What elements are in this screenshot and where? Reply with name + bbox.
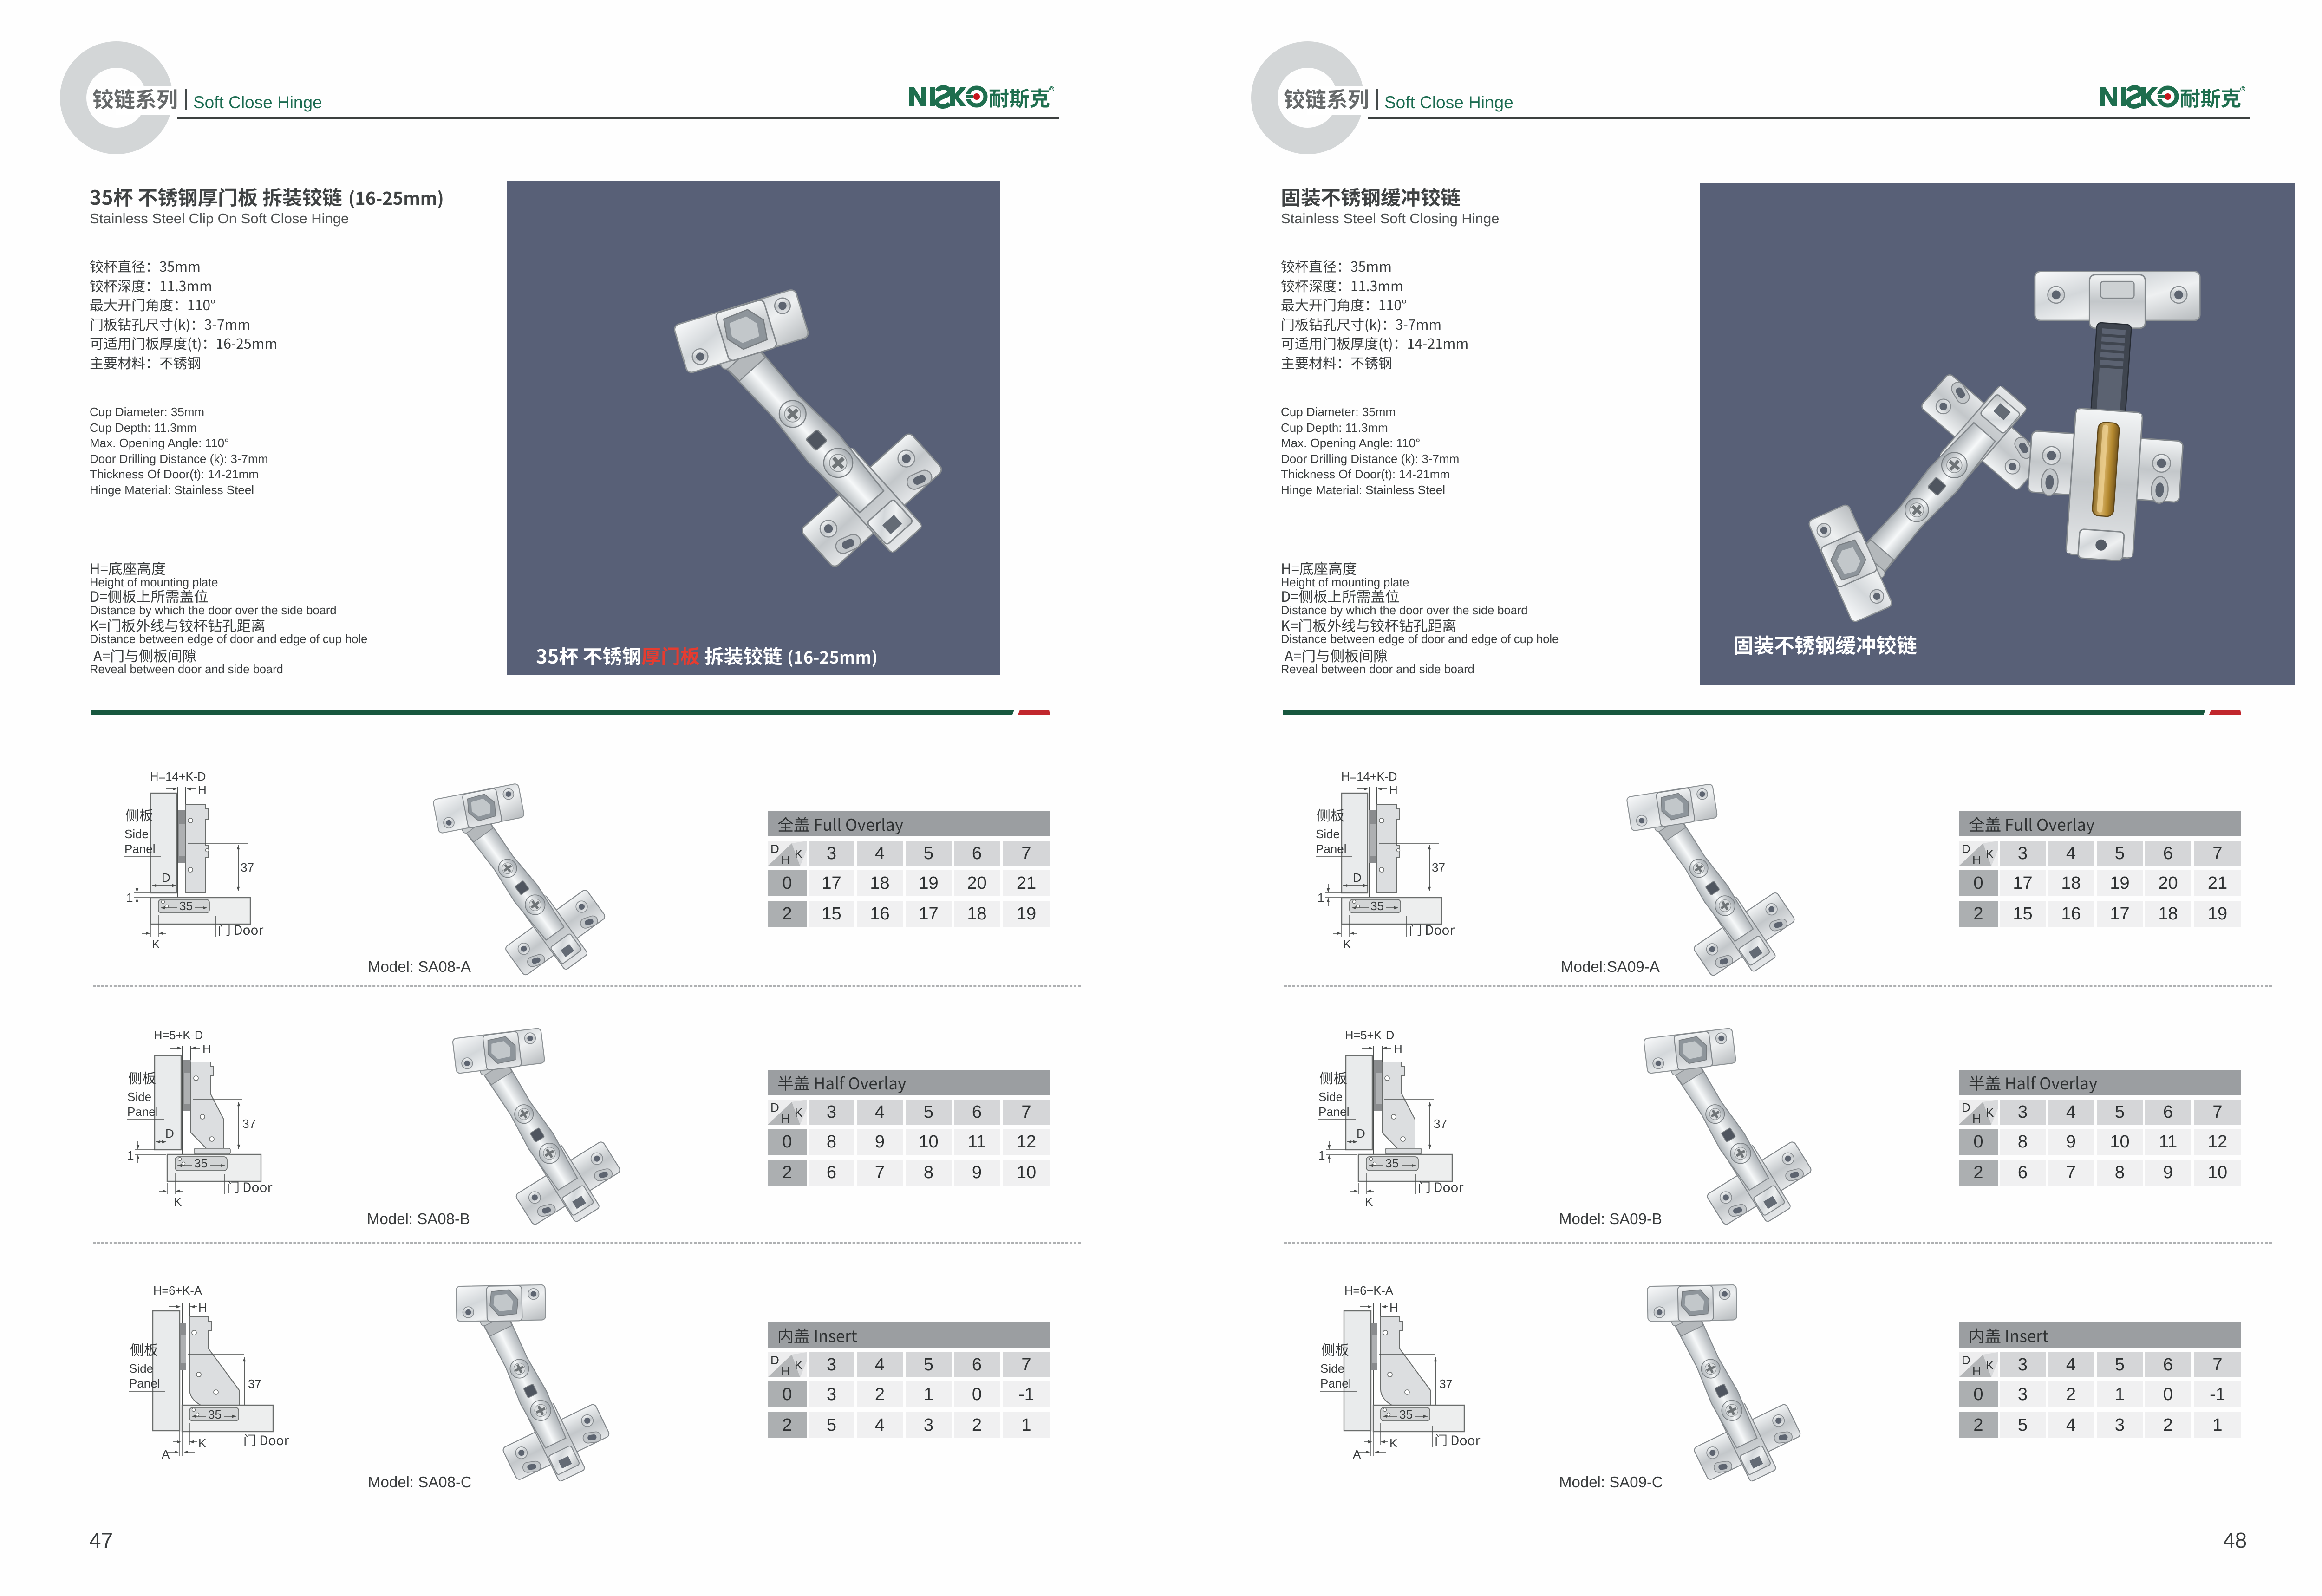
- svg-text:Panel: Panel: [124, 842, 156, 856]
- svg-text:H: H: [781, 853, 790, 867]
- svg-text:H: H: [1972, 853, 1981, 867]
- svg-text:K: K: [1343, 937, 1351, 951]
- svg-text:K: K: [795, 847, 803, 861]
- svg-text:K: K: [795, 1358, 803, 1372]
- svg-text:37: 37: [248, 1377, 261, 1391]
- svg-text:Panel: Panel: [129, 1376, 160, 1390]
- svg-text:37: 37: [1439, 1377, 1453, 1391]
- svg-text:K: K: [1389, 1436, 1398, 1450]
- svg-text:K: K: [1986, 847, 1994, 861]
- svg-text:H: H: [781, 1364, 790, 1378]
- svg-text:Side: Side: [124, 827, 149, 841]
- svg-text:Side: Side: [129, 1361, 153, 1375]
- svg-text:A: A: [162, 1447, 170, 1461]
- svg-text:Panel: Panel: [1318, 1105, 1350, 1119]
- svg-text:35: 35: [194, 1156, 208, 1170]
- svg-text:H=5+K-D: H=5+K-D: [1345, 1029, 1394, 1042]
- svg-text:35: 35: [208, 1407, 222, 1421]
- svg-text:35: 35: [179, 899, 193, 913]
- svg-text:K: K: [795, 1106, 803, 1120]
- svg-text:D: D: [165, 1127, 174, 1140]
- svg-text:D: D: [1962, 1353, 1970, 1367]
- svg-text:K: K: [152, 937, 160, 951]
- svg-text:A: A: [1353, 1447, 1361, 1461]
- svg-text:H=5+K-D: H=5+K-D: [154, 1029, 203, 1042]
- svg-text:H=6+K-A: H=6+K-A: [153, 1284, 202, 1297]
- svg-text:37: 37: [242, 1117, 256, 1131]
- svg-text:Panel: Panel: [127, 1105, 158, 1119]
- svg-text:D: D: [770, 842, 779, 856]
- svg-text:1: 1: [127, 1148, 134, 1162]
- svg-text:Side: Side: [1320, 1361, 1344, 1375]
- svg-text:D: D: [1962, 1101, 1970, 1114]
- svg-text:35: 35: [1399, 1407, 1413, 1421]
- svg-text:37: 37: [241, 860, 254, 874]
- svg-text:37: 37: [1434, 1117, 1447, 1131]
- svg-text:H=14+K-D: H=14+K-D: [1341, 770, 1397, 783]
- svg-text:H: H: [198, 1301, 207, 1315]
- svg-text:H: H: [202, 1042, 211, 1056]
- svg-text:1: 1: [1318, 891, 1324, 905]
- svg-text:Side: Side: [127, 1090, 151, 1104]
- svg-text:D: D: [1353, 871, 1362, 885]
- svg-text:Side: Side: [1318, 1090, 1343, 1104]
- svg-text:H: H: [198, 783, 207, 797]
- svg-text:H: H: [1394, 1042, 1402, 1056]
- svg-text:K: K: [1986, 1106, 1994, 1120]
- svg-text:H=6+K-A: H=6+K-A: [1344, 1284, 1393, 1297]
- svg-text:H=14+K-D: H=14+K-D: [150, 770, 206, 783]
- svg-text:37: 37: [1432, 860, 1445, 874]
- svg-text:K: K: [174, 1195, 182, 1209]
- svg-text:35: 35: [1385, 1156, 1399, 1170]
- svg-text:K: K: [1986, 1358, 1994, 1372]
- svg-text:D: D: [1962, 842, 1970, 856]
- svg-text:H: H: [1972, 1112, 1981, 1126]
- svg-text:D: D: [770, 1101, 779, 1114]
- svg-text:D: D: [770, 1353, 779, 1367]
- svg-text:H: H: [1389, 783, 1398, 797]
- svg-text:H: H: [1972, 1364, 1981, 1378]
- svg-text:Panel: Panel: [1320, 1376, 1351, 1390]
- svg-text:1: 1: [1318, 1148, 1325, 1162]
- svg-text:K: K: [198, 1436, 207, 1450]
- svg-text:K: K: [1365, 1195, 1373, 1209]
- svg-text:Panel: Panel: [1316, 842, 1347, 856]
- svg-text:D: D: [1357, 1127, 1365, 1140]
- svg-text:1: 1: [126, 891, 133, 905]
- svg-text:H: H: [781, 1112, 790, 1126]
- svg-text:D: D: [162, 871, 170, 885]
- svg-text:Side: Side: [1316, 827, 1340, 841]
- svg-text:35: 35: [1370, 899, 1384, 913]
- svg-text:H: H: [1389, 1301, 1398, 1315]
